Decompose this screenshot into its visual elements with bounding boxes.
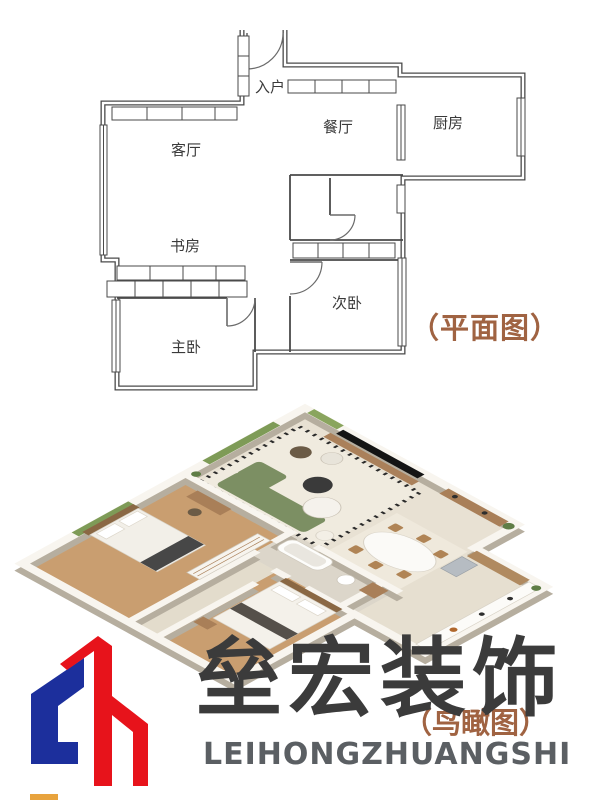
room-label-secondary-bedroom: 次卧 xyxy=(332,294,362,312)
logo-red-leg xyxy=(112,696,148,786)
logo-blue-shape xyxy=(31,658,84,764)
room-label-kitchen: 厨房 xyxy=(433,114,463,132)
room-label-study: 书房 xyxy=(170,237,200,255)
room-label-master-bedroom: 主卧 xyxy=(171,338,201,356)
brand-name-en: LEIHONGZHUANGSHI xyxy=(203,737,593,772)
room-label-entry: 入户 xyxy=(255,78,285,96)
logo-blue-block xyxy=(64,750,78,764)
floor-plan: 入户 餐厅 厨房 客厅 书房 次卧 主卧 （平面图） xyxy=(0,0,600,400)
room-label-dining: 餐厅 xyxy=(323,118,353,136)
poster-page: 入户 餐厅 厨房 客厅 书房 次卧 主卧 （平面图） xyxy=(0,0,600,800)
brand-name-cn: 垒宏装饰 xyxy=(196,632,596,727)
room-label-living: 客厅 xyxy=(171,141,201,159)
brand-logo xyxy=(18,624,208,800)
interior-walls xyxy=(117,175,403,352)
plan-caption: （平面图） xyxy=(410,311,560,345)
